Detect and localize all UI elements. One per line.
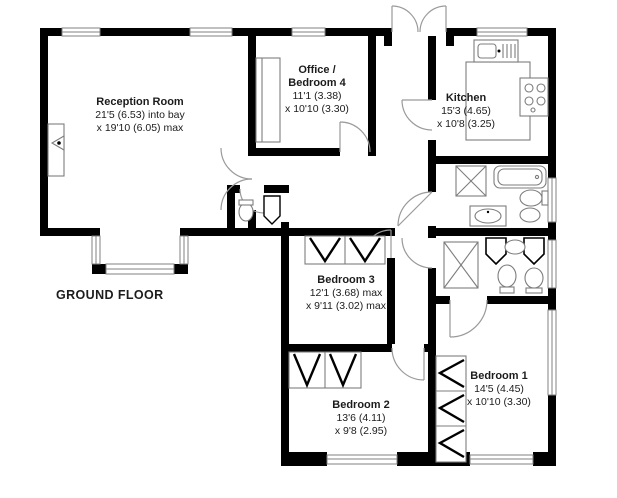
- room-name: Bedroom 2: [300, 399, 422, 412]
- window-icon: [470, 455, 533, 464]
- room-name: Office / Bedroom 4: [277, 64, 357, 90]
- toilet-icon: [520, 190, 548, 206]
- room-label-bedroom1: Bedroom 1 14'5 (4.45) x 10'10 (3.30): [438, 370, 560, 408]
- room-size: 12'1 (3.68) max: [285, 287, 407, 300]
- door-swing-icon: [450, 300, 487, 337]
- cupboard-icon: [524, 238, 544, 264]
- room-label-bedroom2: Bedroom 2 13'6 (4.11) x 9'8 (2.95): [300, 399, 422, 437]
- window-icon: [292, 28, 325, 36]
- floorplan-page: Reception Room 21'5 (6.53) into bay x 19…: [0, 0, 617, 498]
- room-size: 15'3 (4.65): [405, 105, 527, 118]
- window-icon: [477, 28, 527, 36]
- room-label-reception: Reception Room 21'5 (6.53) into bay x 19…: [58, 96, 222, 134]
- room-name: Kitchen: [405, 92, 527, 105]
- shower-icon: [456, 166, 486, 196]
- bathtub-icon: [494, 166, 546, 188]
- room-size: 14'5 (4.45): [438, 383, 560, 396]
- room-size: 13'6 (4.11): [300, 412, 422, 425]
- door-swing-icon: [402, 238, 432, 268]
- floor-title: GROUND FLOOR: [56, 288, 164, 302]
- room-size: x 10'8 (3.25): [405, 118, 527, 131]
- basin-icon: [505, 240, 525, 254]
- room-size: x 9'11 (3.02) max: [285, 300, 407, 313]
- window-icon: [548, 240, 556, 288]
- basin-icon: [525, 268, 543, 293]
- toilet-icon: [498, 265, 516, 293]
- window-icon: [548, 178, 556, 222]
- room-label-office-bedroom4: Office / Bedroom 4 11'1 (3.38) x 10'10 (…: [257, 64, 377, 115]
- shower-icon: [444, 242, 478, 288]
- room-size: x 9'8 (2.95): [300, 425, 422, 438]
- window-icon: [62, 28, 100, 36]
- room-size: x 10'10 (3.30): [257, 103, 377, 116]
- wardrobe-icon: [289, 352, 361, 388]
- room-label-kitchen: Kitchen 15'3 (4.65) x 10'8 (3.25): [405, 92, 527, 130]
- window-icon: [327, 455, 397, 464]
- room-label-bedroom3: Bedroom 3 12'1 (3.68) max x 9'11 (3.02) …: [285, 274, 407, 312]
- cupboard-icon: [486, 238, 506, 264]
- room-size: 21'5 (6.53) into bay: [58, 109, 222, 122]
- wardrobe-icon: [305, 236, 385, 264]
- room-name: Reception Room: [58, 96, 222, 109]
- kitchen-sink-icon: [474, 40, 518, 62]
- door-swing-icon: [340, 122, 370, 152]
- cupboard-icon: [264, 196, 280, 224]
- basin-icon: [470, 206, 506, 226]
- room-size: x 19'10 (6.05) max: [58, 122, 222, 135]
- room-size: 11'1 (3.38): [257, 90, 377, 103]
- bay-window-icon: [92, 236, 188, 274]
- room-name: Bedroom 3: [285, 274, 407, 287]
- room-size: x 10'10 (3.30): [438, 396, 560, 409]
- toilet-icon: [239, 200, 253, 221]
- door-swing-icon: [392, 348, 424, 380]
- window-icon: [190, 28, 232, 36]
- room-name: Bedroom 1: [438, 370, 560, 383]
- door-swing-icon: [398, 192, 432, 226]
- entrance-double-door-icon: [392, 6, 446, 32]
- bidet-icon: [520, 208, 540, 222]
